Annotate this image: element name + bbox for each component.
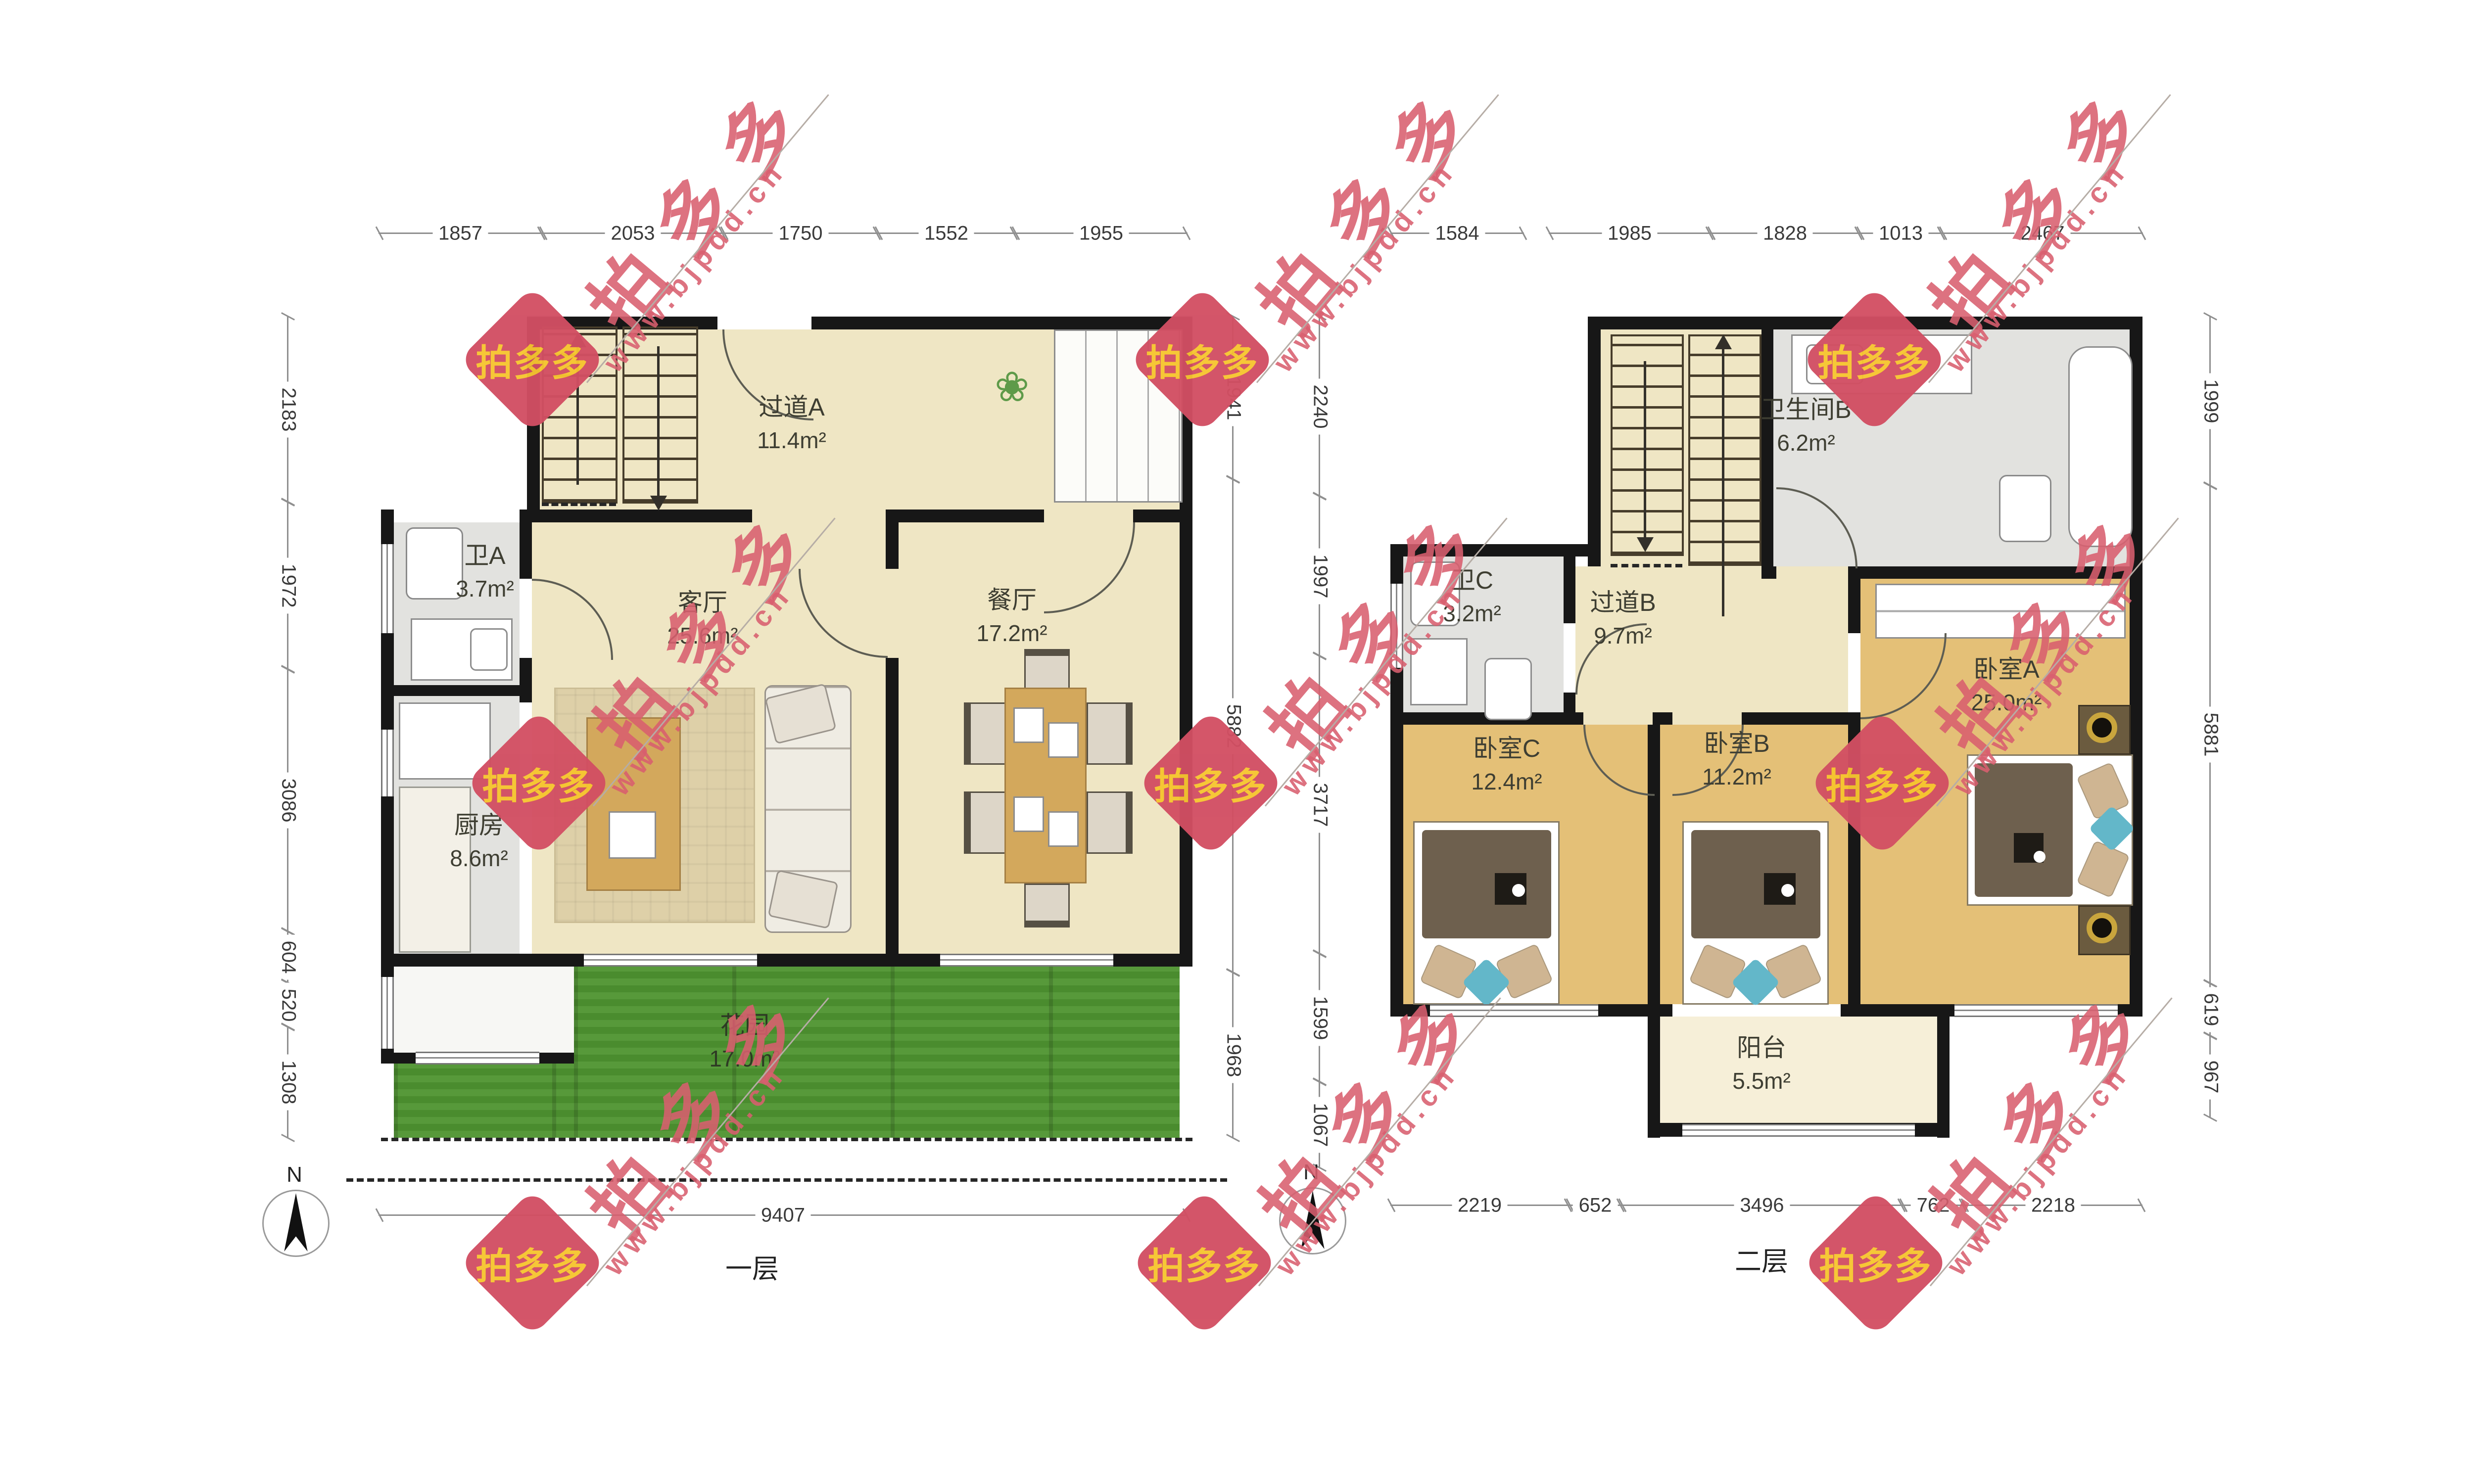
bed-blanket xyxy=(1422,830,1551,938)
room-label-bedroom-a: 卧室A 25.0m² xyxy=(1971,652,2042,718)
dimension: 3496 xyxy=(1621,1205,1903,1206)
placemat xyxy=(1013,796,1044,832)
wall-segment xyxy=(1855,566,2142,579)
watermark-logo-icon: 拍多多 xyxy=(1131,1190,1278,1337)
wall-segment xyxy=(381,633,394,730)
bed-pillow xyxy=(1764,943,1822,1000)
dimension: 3086 xyxy=(287,669,288,931)
wall-segment xyxy=(1390,1004,1430,1017)
watermark-brand-text: 拍多多 xyxy=(1230,50,1508,352)
bed-pillow xyxy=(1420,943,1477,1000)
room-label-balcony: 阳台 5.5m² xyxy=(1732,1030,1791,1097)
watermark-url-text: www.bjpdd.cn xyxy=(1940,1058,2136,1282)
bed xyxy=(1413,821,1560,1005)
nightstand xyxy=(2078,705,2131,755)
shower-icon xyxy=(1410,638,1468,705)
sink-basin-icon xyxy=(1484,658,1532,720)
placemat xyxy=(1013,707,1044,743)
north-compass-icon xyxy=(1279,1187,1346,1254)
stair-cut-line xyxy=(1611,564,1682,567)
wall-segment xyxy=(2118,1004,2142,1017)
wall-segment xyxy=(1742,712,1860,725)
room-label-bedroom-c: 卧室C 12.4m² xyxy=(1471,731,1542,797)
wall-segment xyxy=(1390,544,1601,556)
dimension: 1067 xyxy=(1319,1082,1320,1167)
wall-segment xyxy=(886,522,899,569)
dimension: 520 xyxy=(287,983,288,1027)
staircase-flight xyxy=(542,326,618,504)
nightstand xyxy=(2078,905,2131,955)
dimension: 1955 xyxy=(1015,232,1188,234)
wall-segment xyxy=(1133,510,1192,522)
wall-segment xyxy=(381,954,584,967)
stair-arrow-up-icon xyxy=(1715,334,1732,349)
dimension: 1985 xyxy=(1549,232,1711,234)
room-label-living: 客厅 25.6m² xyxy=(667,585,738,651)
toilet-icon xyxy=(1999,475,2051,542)
room-balcony-floor xyxy=(1660,1017,1937,1123)
coffee-table xyxy=(586,717,681,891)
dimension: 1013 xyxy=(1859,232,1942,234)
watermark-line xyxy=(1930,997,2173,1286)
wall-segment xyxy=(757,954,940,967)
room-label-bedroom-b: 卧室B 11.2m² xyxy=(1702,726,1771,792)
wall-segment xyxy=(1390,668,1403,1017)
dining-chair xyxy=(1024,649,1070,693)
stair-direction-arrow xyxy=(576,346,579,485)
dimension: 5882 xyxy=(1232,479,1234,973)
dimension: 1308 xyxy=(287,1027,288,1138)
window xyxy=(1954,1004,2118,1017)
dimension: 1599 xyxy=(1319,954,1320,1082)
wall-segment xyxy=(886,658,899,965)
dimension: 9407 xyxy=(379,1214,1188,1216)
wall-segment xyxy=(1653,712,1672,725)
wall-segment xyxy=(1761,566,1776,579)
bed-pillow xyxy=(1495,943,1553,1000)
window xyxy=(381,544,394,633)
stair-arrow-up-icon xyxy=(570,332,586,347)
dimension: 1750 xyxy=(723,232,878,234)
bed xyxy=(1967,754,2133,906)
window xyxy=(584,954,757,967)
wall-segment xyxy=(1648,1017,1660,1138)
wall-segment xyxy=(527,510,752,522)
room-label-hallway-a: 过道A 11.4m² xyxy=(757,390,826,456)
watermark-unit: 拍多多 拍多多 www.bjpdd.cn xyxy=(1150,75,1536,461)
lot-dashed-border xyxy=(346,1178,1227,1182)
stair-cut-line xyxy=(542,503,616,506)
watermark-brand-text: 拍多多 xyxy=(560,50,838,352)
dining-chair xyxy=(1087,702,1133,765)
north-label: N xyxy=(286,1162,302,1187)
wall-segment xyxy=(381,510,394,544)
lamp-icon xyxy=(2087,712,2117,743)
wall-segment xyxy=(1848,717,1860,1017)
stair-arrow-down-icon xyxy=(650,496,667,510)
wall-segment xyxy=(1564,556,1575,623)
bed-quilt-dot xyxy=(2034,851,2046,863)
dimension: 1552 xyxy=(878,232,1015,234)
dimension: 2240 xyxy=(1319,317,1320,496)
dimension: 1584 xyxy=(1390,232,1524,234)
room-label-bath-c: 卫C 3.2m² xyxy=(1443,563,1501,629)
wall-segment xyxy=(1588,317,2142,329)
window xyxy=(1390,584,1403,668)
window xyxy=(381,977,394,1049)
bed-blanket xyxy=(1691,830,1820,938)
room-garden-floor xyxy=(574,967,1180,1138)
placemat xyxy=(1048,811,1079,847)
bed-blanket xyxy=(1975,763,2073,897)
wall-segment xyxy=(527,317,540,522)
wall-segment xyxy=(1588,317,1601,554)
fridge-icon xyxy=(399,702,491,780)
window xyxy=(416,1052,539,1065)
floorplan-canvas: ❀ 过道A 11.4m² 卫A 3.7m² 客厅 25.6m² 餐厅 xyxy=(0,0,2474,1484)
sink-basin-icon xyxy=(1806,344,1863,384)
watermark-unit: 拍多多 拍多多 www.bjpdd.cn xyxy=(1152,978,1538,1364)
stair-direction-arrow xyxy=(1644,361,1646,539)
staircase-flight xyxy=(622,326,698,504)
watermark-url-text: www.bjpdd.cn xyxy=(1267,154,1462,378)
dimension: 762 xyxy=(1903,1205,1964,1206)
north-label: N xyxy=(1303,1160,1319,1185)
dimension: 3717 xyxy=(1319,656,1320,954)
dimension: 1941 xyxy=(1232,317,1234,479)
watermark-brand-text: 拍多多 xyxy=(1902,50,2180,352)
wall-segment xyxy=(1390,544,1403,584)
stair-arrow-down-icon xyxy=(1637,537,1654,552)
room-label-bath-b: 卫生间B 6.2m² xyxy=(1760,392,1851,459)
wall-segment xyxy=(520,510,532,579)
dining-chair xyxy=(964,702,1010,765)
compass-needle xyxy=(278,1193,314,1252)
garden-dashed-border xyxy=(381,1138,1192,1141)
floor2-label: 二层 xyxy=(1735,1240,1788,1279)
dimension: 2053 xyxy=(542,232,723,234)
staircase-flight xyxy=(1611,334,1684,556)
staircase-flight xyxy=(1688,334,1761,566)
bed xyxy=(1682,821,1829,1005)
dimension: 5881 xyxy=(2209,486,2211,983)
room-label-dining: 餐厅 17.2m² xyxy=(976,583,1047,649)
wall-segment xyxy=(1598,1004,1672,1017)
window xyxy=(1430,1004,1598,1017)
dimension: 1972 xyxy=(287,502,288,669)
wardrobe-cabinet xyxy=(1054,329,1183,503)
dimension: 652 xyxy=(1569,1205,1621,1206)
floor1-label: 一层 xyxy=(725,1247,779,1286)
wall-segment xyxy=(1841,1004,1954,1017)
dimension: 1828 xyxy=(1711,232,1859,234)
plant-icon: ❀ xyxy=(995,366,1029,408)
porch-floor xyxy=(394,967,574,1053)
placemat xyxy=(1048,722,1079,758)
wall-segment xyxy=(886,510,1044,522)
wall-segment xyxy=(381,796,394,977)
toilet-icon xyxy=(406,527,463,600)
dimension: 619 xyxy=(2209,983,2211,1036)
window xyxy=(381,730,394,796)
wall-segment xyxy=(1113,954,1192,967)
lamp-icon xyxy=(2087,913,2117,943)
wall-segment xyxy=(1575,712,1583,725)
room-label-bath-a: 卫A 3.7m² xyxy=(456,538,514,604)
compass-needle xyxy=(1294,1191,1331,1249)
wall-segment xyxy=(1937,1017,1950,1138)
balcony-window xyxy=(1682,1124,1915,1137)
dimension: 2183 xyxy=(287,317,288,502)
stair-direction-arrow xyxy=(1722,349,1724,616)
magazine-icon xyxy=(609,811,656,859)
window xyxy=(940,954,1113,967)
dimension: 1857 xyxy=(379,232,542,234)
bed-pillow xyxy=(1689,943,1747,1000)
room-label-hallway-b: 过道B 9.7m² xyxy=(1590,585,1656,651)
dining-chair xyxy=(1087,791,1133,854)
dimension: 1997 xyxy=(1319,496,1320,656)
bathtub-icon xyxy=(2068,346,2133,547)
dimension: 967 xyxy=(2209,1036,2211,1117)
dimension: 604 xyxy=(287,931,288,983)
dimension: 2218 xyxy=(1964,1205,2142,1206)
sink-basin-icon xyxy=(470,628,508,671)
room-label-garden: 花园 17.0m² xyxy=(709,1008,780,1074)
dimension: 2467 xyxy=(1942,232,2143,234)
wardrobe-cabinet xyxy=(1875,584,2126,639)
dimension: 2219 xyxy=(1390,1205,1569,1206)
bed-pillow xyxy=(2076,840,2130,898)
watermark-logo-icon: 拍多多 xyxy=(459,1190,606,1337)
bed-pillow xyxy=(2076,762,2130,820)
room-label-kitchen: 厨房 8.6m² xyxy=(450,808,508,874)
dining-chair xyxy=(1024,883,1070,927)
north-compass-icon xyxy=(262,1190,330,1257)
room-garden-floor-left xyxy=(394,1064,574,1138)
stair-direction-arrow xyxy=(657,346,660,497)
wall-segment xyxy=(1848,566,1860,633)
dimension: 1999 xyxy=(2209,317,2211,486)
wall-segment xyxy=(394,685,532,696)
wall-segment xyxy=(811,317,1192,329)
dimension: 1968 xyxy=(1232,973,1234,1138)
dining-chair xyxy=(964,791,1010,854)
